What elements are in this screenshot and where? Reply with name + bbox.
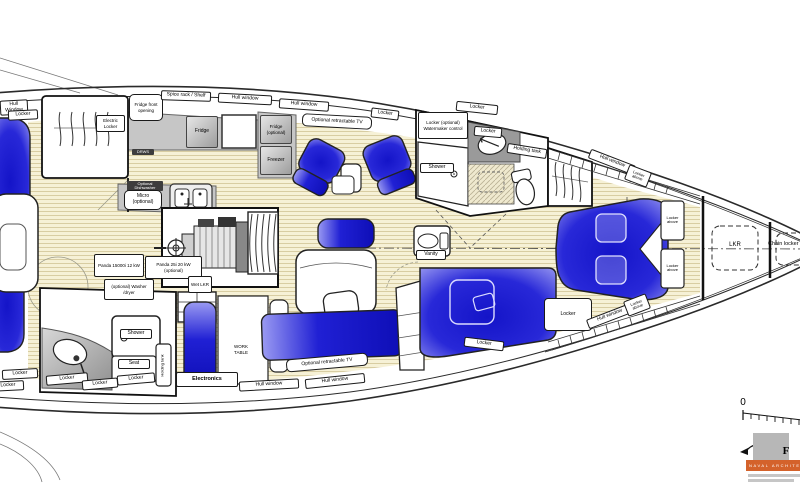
holding-tank-label-vertical: Holding tank	[158, 344, 169, 388]
settee	[261, 310, 403, 361]
work-table-label: WORK TABLE	[226, 340, 256, 359]
locker-above-label: Locker above	[662, 210, 683, 230]
spice-rack-label: Spice rack / Shelf	[161, 90, 211, 101]
logo-banner-bar: NAVAL ARCHITECTS	[746, 460, 800, 471]
electronics-label: Electronics	[176, 372, 238, 387]
shower-label-aft: Shower	[120, 329, 152, 339]
panda-15000i-label: Panda 15000i 12 kW	[94, 254, 144, 277]
locker-box-midcabin: Locker	[544, 298, 592, 331]
wet-lkr-label: Wet LKR	[188, 276, 212, 293]
seat-label: Seat	[118, 359, 150, 369]
washer-dryer-label: (optional) Washer /dryer	[104, 279, 154, 300]
fridge-box: Fridge	[186, 116, 218, 148]
fridge-front-opening-label: Fridge front opening	[129, 94, 163, 121]
hanging-locker-fwd	[548, 148, 592, 206]
aft-seat	[0, 194, 38, 292]
shower-label-fwd: Shower	[420, 163, 454, 173]
micro-label: Micro (optional)	[124, 190, 162, 210]
companionway-steps	[248, 212, 278, 274]
lkr-label: LKR	[714, 241, 756, 250]
vanity-label: Vanity	[416, 250, 446, 260]
logo-letter: F	[778, 444, 794, 458]
yacht-floor-plan: NAVAL ARCHITECTS Hull Window Locker Elec…	[0, 0, 800, 500]
freezer-box: Freezer	[260, 146, 292, 175]
plan-drawing	[0, 0, 800, 500]
fridge-optional-box: Fridge (optional)	[260, 115, 292, 144]
scale-bar	[743, 410, 800, 425]
locker-label: Locker	[2, 368, 38, 379]
fwd-bed-pillow-2	[596, 256, 626, 284]
drawers-label: DRWS	[132, 149, 154, 155]
electric-locker-label: Electric Locker	[96, 115, 125, 132]
logo-tagline-line-2	[748, 479, 794, 482]
locker-label: Locker	[8, 109, 38, 120]
side-table-2	[332, 176, 354, 194]
logo-tagline-line-1	[748, 474, 800, 477]
locker-above-label: Locker above	[662, 258, 683, 278]
scale-zero-label: 0	[736, 396, 750, 409]
stove	[222, 115, 256, 148]
chain-locker-label: Chain locker	[766, 240, 800, 248]
locker-label: Locker	[0, 380, 24, 391]
fwd-bed-pillow-1	[596, 214, 626, 242]
watermaker-label: Locker (optional) Watermaker control	[418, 112, 468, 139]
sofa-headrest	[318, 219, 374, 248]
shower-room-fwd	[418, 142, 468, 206]
shower-floor-fwd	[468, 164, 514, 204]
